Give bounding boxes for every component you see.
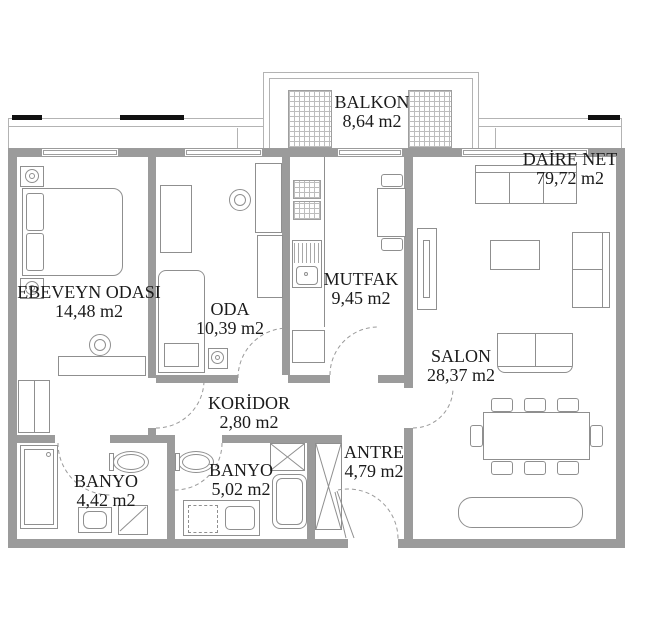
chair	[381, 174, 403, 187]
chair	[491, 398, 513, 412]
room-label-mutfak: MUTFAK 9,45 m2	[324, 270, 399, 308]
room-label-koridor: KORİDOR 2,80 m2	[208, 394, 290, 432]
lamp-icon	[29, 173, 35, 179]
wall-right	[616, 148, 625, 548]
washbasin-bowl	[83, 511, 107, 529]
balcony-door-window	[338, 148, 402, 157]
room-label-banyo: BANYO 5,02 m2	[209, 461, 273, 499]
wall-bottom	[398, 539, 625, 548]
floor-plan: BALKON 8,64 m2 DAİRE NET 79,72 m2 EBEVEY…	[0, 0, 660, 619]
stove	[293, 180, 321, 199]
room-area: 4,79 m2	[344, 462, 404, 481]
wall-segment	[402, 148, 462, 157]
room-name: EBEVEYN ODASI	[17, 283, 161, 302]
column-tick	[237, 128, 238, 148]
toilet-tank	[175, 453, 180, 471]
vanity-desk	[58, 356, 146, 376]
room-area: 9,45 m2	[324, 289, 399, 308]
wall-segment	[17, 435, 55, 443]
wall-segment	[282, 157, 290, 375]
room-label-balkon: BALKON 8,64 m2	[335, 93, 410, 131]
room-area: 2,80 m2	[208, 413, 290, 432]
pillow	[164, 343, 199, 367]
lamp-icon	[215, 355, 220, 360]
chair	[557, 398, 579, 412]
wall-segment	[148, 157, 156, 378]
wall-bottom	[8, 539, 348, 548]
eaves-line	[8, 126, 264, 127]
duct-box	[270, 443, 305, 471]
wall-segment	[378, 375, 405, 383]
chair	[381, 238, 403, 251]
balcony-hatch	[288, 90, 332, 148]
chair	[590, 425, 603, 447]
sofa-line	[602, 233, 603, 307]
washing-machine	[188, 505, 218, 533]
eaves-line	[478, 126, 622, 127]
toilet	[117, 454, 145, 470]
window	[185, 148, 262, 157]
balcony-outline	[472, 78, 473, 148]
pillow	[26, 233, 44, 271]
room-label-ebeveyn: EBEVEYN ODASI 14,48 m2	[17, 283, 161, 321]
kitchen-table	[377, 188, 406, 237]
eaves-line	[8, 118, 9, 148]
room-name: MUTFAK	[324, 270, 399, 289]
toilet	[182, 454, 210, 470]
wall-segment	[156, 375, 238, 383]
balcony-outline	[263, 72, 479, 73]
wardrobe-divider	[34, 381, 35, 432]
wardrobe	[257, 235, 283, 298]
sofa-line	[509, 173, 510, 203]
room-name: ODA	[196, 300, 264, 319]
sofa	[572, 232, 610, 308]
chair	[491, 461, 513, 475]
balcony-outline	[269, 78, 473, 79]
balcony-outline	[263, 72, 264, 148]
wall-segment	[222, 435, 342, 443]
room-area: 5,02 m2	[209, 480, 273, 499]
dining-table	[483, 412, 590, 460]
pillow	[26, 193, 44, 231]
drain-icon	[304, 272, 308, 276]
wall-segment	[288, 375, 330, 383]
room-label-antre: ANTRE 4,79 m2	[344, 443, 404, 481]
sofa-line	[573, 269, 602, 270]
sofa-line	[535, 334, 536, 366]
balcony-outline	[478, 72, 479, 148]
fridge	[292, 330, 325, 363]
drain-icon	[46, 452, 51, 457]
room-name: BALKON	[335, 93, 410, 112]
dimension-bar	[120, 115, 184, 120]
room-label-daire-net: DAİRE NET 79,72 m2	[523, 150, 617, 188]
room-name: BANYO	[209, 461, 273, 480]
desk	[255, 163, 282, 233]
room-label-salon: SALON 28,37 m2	[427, 347, 495, 385]
balcony-outline	[269, 78, 270, 148]
dimension-bar	[12, 115, 42, 120]
chair	[234, 194, 246, 206]
dresser	[160, 185, 192, 253]
room-area: 10,39 m2	[196, 319, 264, 338]
window	[42, 148, 118, 157]
room-label-banyo-ebeveyn: BANYO 4,42 m2	[74, 472, 138, 510]
chair	[524, 461, 546, 475]
wall-left	[8, 148, 17, 548]
room-area: 4,42 m2	[74, 491, 138, 510]
wall-segment	[404, 428, 413, 548]
balcony-hatch	[408, 90, 452, 148]
wall-segment	[167, 443, 175, 539]
room-name: BANYO	[74, 472, 138, 491]
room-label-oda: ODA 10,39 m2	[196, 300, 264, 338]
room-name: ANTRE	[344, 443, 404, 462]
rug	[458, 497, 583, 528]
room-area: 28,37 m2	[427, 366, 495, 385]
shower-tray	[276, 478, 303, 525]
room-area: 14,48 m2	[17, 302, 161, 321]
shower-tray	[24, 449, 54, 525]
eaves-line	[621, 118, 622, 148]
chair	[557, 461, 579, 475]
tv-screen	[423, 240, 430, 298]
drainboard	[294, 243, 320, 263]
sofa-line	[498, 366, 572, 367]
stool	[94, 339, 106, 351]
column-tick	[495, 128, 496, 148]
room-area: 8,64 m2	[335, 112, 410, 131]
chair	[524, 398, 546, 412]
room-name: DAİRE NET	[523, 150, 617, 169]
dimension-bar	[588, 115, 620, 120]
wall-segment	[307, 443, 315, 539]
room-name: KORİDOR	[208, 394, 290, 413]
wall-segment	[262, 148, 338, 157]
chair	[470, 425, 483, 447]
room-area: 79,72 m2	[523, 169, 617, 188]
wall-segment	[118, 148, 185, 157]
room-name: SALON	[427, 347, 495, 366]
coffee-table	[490, 240, 540, 270]
wall-segment	[110, 435, 175, 443]
shaft	[315, 443, 342, 530]
toilet-tank	[109, 453, 114, 471]
stove	[293, 201, 321, 220]
washbasin-bowl	[225, 506, 255, 530]
